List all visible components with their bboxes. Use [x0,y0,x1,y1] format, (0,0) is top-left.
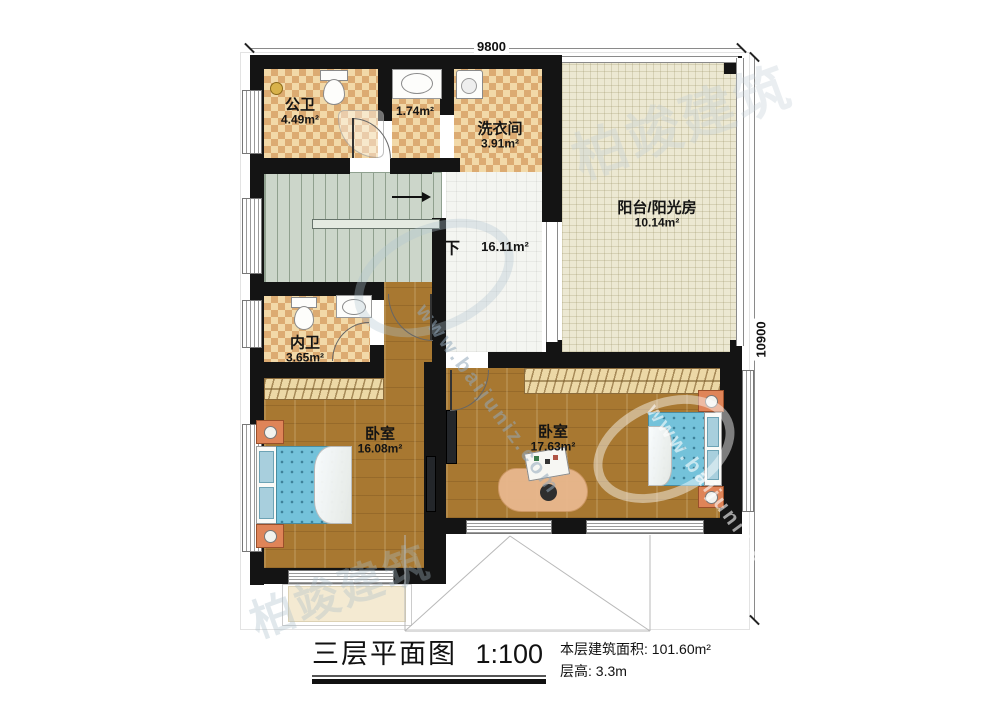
room-label-gongwei-area: 4.49m² [281,113,319,127]
wall-below-gongwei-b [390,158,432,174]
shower-head-icon [270,82,283,95]
awning-canopy [288,586,406,622]
wall-hall-top-stub [432,158,460,172]
window-stairs [242,198,262,274]
stair-direction-label: 下 [444,242,460,257]
floor-area-label: 本层建筑面积: [560,641,648,657]
sink-basin-alcove [401,73,433,94]
room-label-laundry-name: 洗衣间 [477,122,522,137]
room-label-neiwei: 内卫 3.65m² [286,336,324,365]
plan-scale: 1:100 [475,639,543,669]
room-label-bedroom-right-area: 17.63m² [531,440,576,454]
floor-plan: 9800 10900 [0,0,1000,706]
floor-height-value: 3.3m [596,663,627,679]
room-label-bedroom-right-name: 卧室 [531,425,576,440]
closet-left-bedroom [264,378,384,400]
stair-arrow-shaft [392,196,422,198]
room-label-bedroom-left: 卧室 16.08m² [358,427,403,456]
wall-bedroom-right-top [488,352,742,368]
tv-right-bedroom [446,410,457,464]
bed-left-pillow [259,487,274,519]
wall-top [250,55,556,69]
dimension-right-label: 10900 [754,318,769,360]
desk-chair [540,484,557,501]
stair-direction-text: 下 [444,242,460,257]
closet-right-bedroom [524,368,722,394]
toilet-bowl-neiwei [294,306,314,330]
nightstand-right-bottom [698,486,724,508]
window-neiwei [242,300,262,348]
wall-below-gongwei-a [250,158,350,174]
floor-height-line: 层高: 3.3m [560,660,711,682]
toilet-bowl-gongwei [323,79,345,105]
lamp-icon [264,530,277,543]
floor-area-line: 本层建筑面积: 101.60m² [560,638,711,660]
title-underline-thick [312,679,546,684]
room-label-hall-area: 16.11m² [481,240,529,254]
nightstand-left-bottom [256,524,284,548]
room-label-bedroom-left-name: 卧室 [358,427,403,442]
room-label-gongwei: 公卫 4.49m² [281,98,319,127]
balcony-glass-right [736,58,744,346]
window-bedroom-right-side [742,370,754,512]
room-label-hall: 16.11m² [481,240,529,254]
wall-hall-balcony [542,55,562,222]
legend-info-block: 本层建筑面积: 101.60m² 层高: 3.3m [560,638,711,682]
room-label-bedroom-left-area: 16.08m² [358,442,403,456]
roof-outline [400,530,656,636]
legend-title-block: 三层平面图 1:100 [312,632,546,684]
balcony-glass-top [562,56,738,63]
threshold-strip [458,158,542,172]
tv-left-bedroom [426,456,436,512]
plan-title: 三层平面图 [312,639,457,669]
room-label-balcony-area: 10.14m² [617,216,696,230]
room-label-neiwei-area: 3.65m² [286,351,324,365]
door-leaf-bedroom-right [450,370,452,410]
balcony-column-sw [546,340,562,354]
room-label-balcony: 阳台/阳光房 10.14m² [617,201,696,230]
dimension-top-label: 9800 [474,39,509,54]
bed-left-pillow [259,451,274,483]
room-label-neiwei-name: 内卫 [286,336,324,351]
room-label-alcove-area: 1.74m² [396,104,434,118]
window-gongwei [242,90,262,154]
room-label-laundry: 洗衣间 3.91m² [477,122,522,151]
room-label-gongwei-name: 公卫 [281,98,319,113]
door-leaf-bedroom-left [430,294,432,340]
wall-alcove-laundry [440,69,454,115]
nightstand-left-top [256,420,284,444]
bed-left-blanket [314,446,352,524]
stair-arrow-head [422,192,431,202]
hall-balcony-window [546,222,558,342]
room-label-bedroom-right: 卧室 17.63m² [531,425,576,454]
room-label-balcony-name: 阳台/阳光房 [617,201,696,216]
floor-area-value: 101.60m² [652,641,711,657]
room-label-laundry-area: 3.91m² [477,137,522,151]
title-underline-thin [312,675,546,677]
floor-height-label: 层高: [560,663,592,679]
lamp-icon [705,491,718,504]
room-label-alcove: 1.74m² [396,104,434,118]
lamp-icon [264,426,277,439]
washing-machine-door [461,78,477,94]
window-bedroom-left-bottom [288,570,394,584]
desk-items [534,456,539,461]
door-leaf-gongwei [352,118,354,158]
